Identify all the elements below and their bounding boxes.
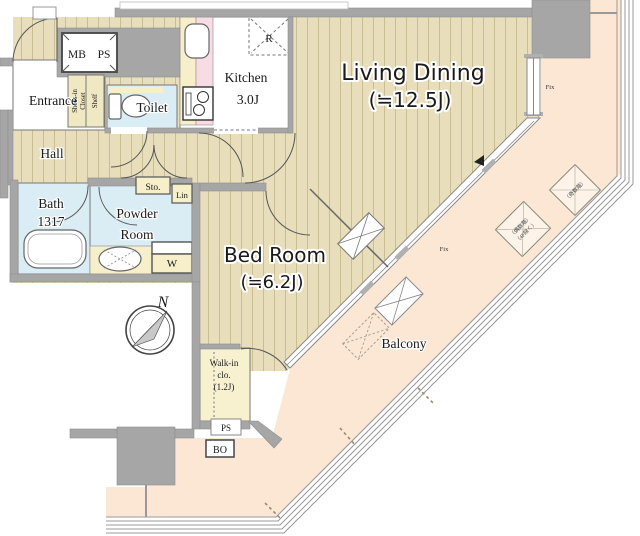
fix-label-diagonal: Fix xyxy=(440,246,449,253)
kitchen-label: Kitchen xyxy=(225,70,268,85)
wall-left-b xyxy=(0,110,8,198)
washer-label: W xyxy=(167,258,178,270)
hall-label: Hall xyxy=(40,146,63,161)
wall-walkin-top xyxy=(200,344,240,349)
living-dining-size: (≒12.5J) xyxy=(369,88,452,112)
refrigerator-label: R xyxy=(265,33,273,45)
wall-left-c xyxy=(8,110,13,185)
storage-label: Sto. xyxy=(145,183,160,193)
window-cap-top xyxy=(524,54,543,58)
fix-label-right: Fix xyxy=(546,84,555,91)
wall-pillar-link xyxy=(175,429,194,438)
bath-outlet-label: BO xyxy=(213,445,227,456)
wall-bedroom-top xyxy=(200,183,266,191)
floor-plan-drawing: （奇数階） （偶数階） （4F除く） Living Dining (≒12.5J… xyxy=(0,0,640,536)
powder-room-label-1: Powder xyxy=(116,206,158,221)
shoes-closet-label-1: Shoes-in xyxy=(72,89,79,113)
pillar-top-right xyxy=(532,0,590,58)
walkin-label-2: clo. xyxy=(217,370,230,380)
walkin-label-3: (1.2J) xyxy=(214,382,235,392)
wall-bath-bottom xyxy=(10,274,194,282)
wall-bedroom-left xyxy=(192,282,200,429)
walkin-label-1: Walk-in xyxy=(210,358,239,368)
shoes-shelf-label: Shelf xyxy=(92,93,99,108)
wall-left-a xyxy=(0,58,13,66)
pillar-bottom-left xyxy=(117,427,175,485)
bed-room-size: (≒6.2J) xyxy=(240,272,303,293)
meter-box-label: MB xyxy=(68,49,86,61)
kitchen-size: 3.0J xyxy=(237,92,259,107)
toilet-door-opening xyxy=(111,127,147,134)
washer-top xyxy=(152,242,192,254)
toilet-tank xyxy=(109,94,121,119)
floor-plan: （奇数階） （偶数階） （4F除く） Living Dining (≒12.5J… xyxy=(0,0,640,536)
top-left-box xyxy=(33,7,56,19)
wall-bath-left xyxy=(10,180,18,282)
kitchen-sink xyxy=(185,24,209,58)
shoes-closet-label-2: Closet xyxy=(80,92,87,109)
pipe-space-lower-label: PS xyxy=(221,423,231,433)
living-dining-label: Living Dining xyxy=(341,61,484,86)
compass-icon xyxy=(126,306,174,354)
balcony-label: Balcony xyxy=(382,336,427,351)
linen-label: Lin xyxy=(176,190,189,200)
entrance-label: Entrance xyxy=(29,93,77,108)
wall-powder-right xyxy=(192,183,200,282)
pipe-space-label: PS xyxy=(98,49,111,61)
toilet-label: Toilet xyxy=(136,100,168,115)
compass-north-label: N xyxy=(157,294,170,311)
bath-size: 1317 xyxy=(38,214,65,229)
powder-room-label-2: Room xyxy=(120,227,154,242)
wall-stub xyxy=(70,429,117,438)
parapet-outline xyxy=(120,2,348,9)
bath-label: Bath xyxy=(38,196,64,211)
wall-kitchen-right xyxy=(288,17,293,133)
bed-room-label: Bed Room xyxy=(224,243,326,267)
toilet-shelf xyxy=(109,87,163,93)
